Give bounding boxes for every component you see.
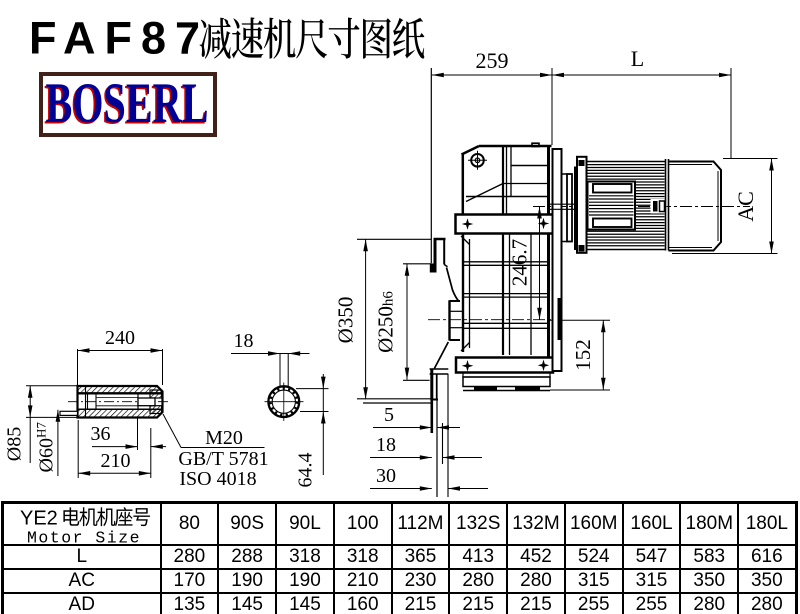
svg-text:AC: AC	[733, 191, 758, 222]
svg-text:30: 30	[376, 465, 396, 487]
svg-text:18: 18	[376, 434, 396, 456]
svg-text:Ø85: Ø85	[4, 427, 26, 461]
svg-text:5: 5	[384, 404, 394, 426]
svg-text:152: 152	[571, 339, 595, 371]
svg-text:ISO 4018: ISO 4018	[179, 468, 256, 490]
svg-text:64.4: 64.4	[295, 453, 317, 488]
svg-text:240: 240	[105, 327, 135, 349]
svg-text:18: 18	[234, 330, 254, 352]
svg-text:246.7: 246.7	[508, 239, 532, 286]
svg-text:36: 36	[91, 423, 111, 445]
svg-text:GB/T 5781: GB/T 5781	[178, 448, 268, 470]
svg-text:259: 259	[476, 48, 509, 73]
svg-text:Ø250h6: Ø250h6	[374, 291, 398, 353]
svg-text:Ø60H7: Ø60H7	[34, 422, 58, 473]
svg-text:Motor Size: Motor Size	[27, 528, 141, 544]
svg-text:M20: M20	[205, 427, 243, 449]
svg-text:L: L	[631, 46, 644, 71]
svg-text:YE2: YE2	[20, 507, 58, 529]
svg-text:210: 210	[101, 450, 131, 472]
svg-text:Ø350: Ø350	[334, 297, 358, 344]
